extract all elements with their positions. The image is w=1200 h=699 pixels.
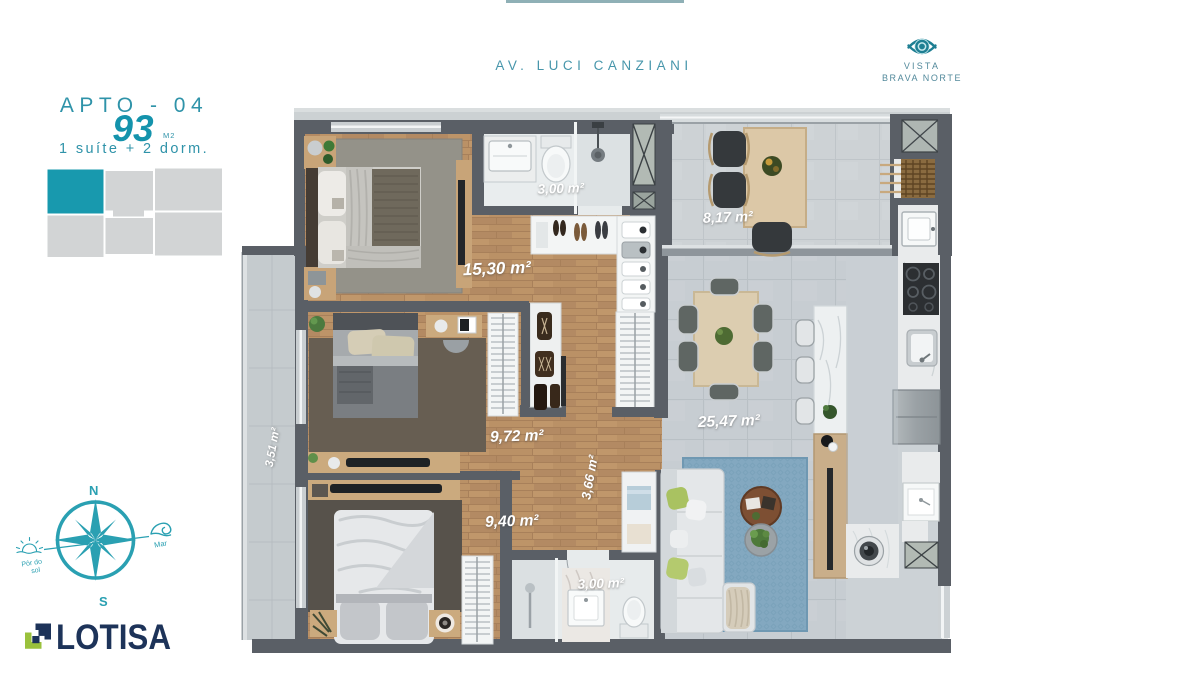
svg-text:sol: sol (31, 567, 41, 575)
svg-text:9,40 m²: 9,40 m² (485, 512, 540, 531)
svg-text:AV. LUCI CANZIANI: AV. LUCI CANZIANI (495, 58, 692, 73)
svg-text:VISTA: VISTA (904, 61, 940, 71)
svg-text:25,47 m²: 25,47 m² (697, 412, 761, 431)
svg-text:15,30 m²: 15,30 m² (462, 258, 532, 279)
svg-text:N: N (89, 483, 98, 498)
svg-text:9,72 m²: 9,72 m² (490, 427, 545, 446)
svg-text:S: S (99, 594, 108, 609)
svg-text:BRAVA NORTE: BRAVA NORTE (882, 73, 962, 83)
svg-text:3,00 m²: 3,00 m² (577, 575, 625, 592)
svg-text:1 suíte + 2 dorm.: 1 suíte + 2 dorm. (59, 141, 209, 157)
svg-text:M2: M2 (163, 131, 175, 140)
svg-text:3,00 m²: 3,00 m² (537, 180, 585, 197)
svg-text:8,17 m²: 8,17 m² (703, 209, 755, 227)
svg-text:LOTISA: LOTISA (56, 618, 171, 657)
